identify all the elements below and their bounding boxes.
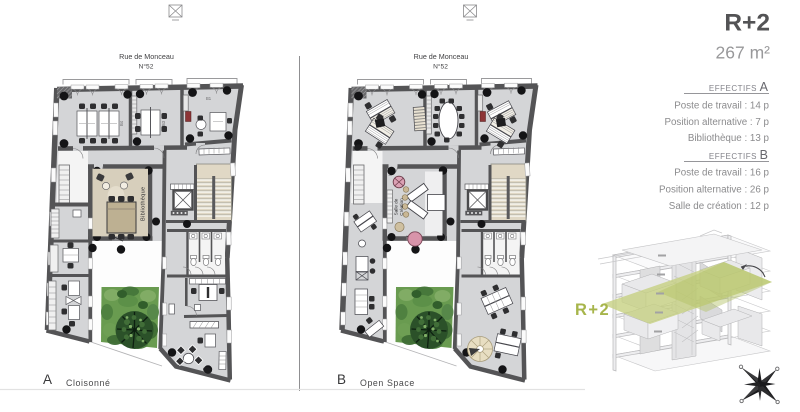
- svg-text:Cloisonné: Cloisonné: [66, 378, 111, 388]
- svg-text:Bibliothèque: Bibliothèque: [141, 187, 147, 221]
- svg-text:Bibliothèque : 13 p: Bibliothèque : 13 p: [688, 133, 770, 144]
- svg-text:R+2: R+2: [575, 301, 610, 319]
- svg-text:R+2: R+2: [724, 10, 770, 37]
- svg-text:A: A: [43, 372, 52, 387]
- svg-text:Position alternative : 7 p: Position alternative : 7 p: [664, 117, 769, 128]
- svg-text:Création: Création: [399, 198, 404, 216]
- svg-text:Salle de création : 12 p: Salle de création : 12 p: [669, 201, 770, 212]
- svg-text:Poste de travail : 14 p: Poste de travail : 14 p: [674, 101, 769, 112]
- svg-text:Poste de travail : 16 p: Poste de travail : 16 p: [674, 168, 769, 179]
- svg-text:Position alternative : 26 p: Position alternative : 26 p: [659, 185, 770, 196]
- svg-text:B1: B1: [206, 96, 212, 101]
- svg-text:B: B: [337, 372, 346, 387]
- svg-text:Salle de: Salle de: [394, 198, 399, 215]
- svg-text:Open Space: Open Space: [360, 378, 415, 388]
- svg-text:267 m²: 267 m²: [716, 43, 771, 63]
- svg-text:B4: B4: [119, 120, 124, 126]
- svg-text:B3: B3: [161, 120, 166, 126]
